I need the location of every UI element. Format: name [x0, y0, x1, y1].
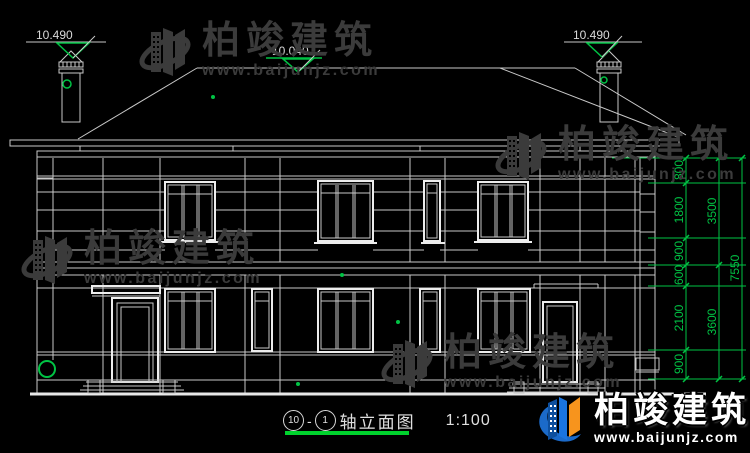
brand-logo-icon — [536, 390, 588, 448]
dim-label: 2100 — [672, 304, 686, 331]
chimney-right — [597, 51, 621, 122]
brand-logo: 柏竣建筑 www.baijunjz.com — [536, 390, 750, 448]
elevation-markers: 10.490 10.040 10.490 — [26, 28, 642, 72]
dim-label: 600 — [672, 265, 686, 285]
cad-viewport: 10.490 10.040 10.490 — [0, 0, 750, 453]
logo-url-text: www.baijunjz.com — [594, 429, 750, 445]
dim-label: 3600 — [705, 308, 719, 335]
title-underline — [285, 431, 409, 435]
door-right — [507, 284, 607, 393]
axis-bubble-end: 1 — [315, 410, 336, 431]
elevation-label-center: 10.040 — [272, 44, 309, 58]
elevation-label-right: 10.490 — [573, 28, 610, 42]
windows-first-floor — [165, 289, 530, 352]
dim-label: 1800 — [672, 196, 686, 223]
drawing-title: 10 - 1 轴立面图 1:100 — [283, 408, 491, 433]
roof-lines — [10, 68, 686, 157]
drawing-scale: 1:100 — [446, 412, 491, 430]
dim-label: 900 — [672, 241, 686, 261]
axis-dash: - — [307, 413, 312, 429]
elevation-label-left: 10.490 — [36, 28, 73, 42]
drawing-title-text: 轴立面图 — [340, 408, 416, 433]
elevation-drawing: 10.490 10.040 10.490 — [0, 0, 750, 453]
chimney-left — [59, 51, 83, 122]
windows-second-floor — [161, 181, 532, 243]
dim-label: 900 — [672, 354, 686, 374]
dim-label: 7550 — [728, 254, 742, 281]
dim-label: 3500 — [705, 197, 719, 224]
logo-brand-text: 柏竣建筑 — [594, 393, 750, 430]
axis-bubble-start: 10 — [283, 410, 304, 431]
dim-label: 800 — [672, 160, 686, 180]
